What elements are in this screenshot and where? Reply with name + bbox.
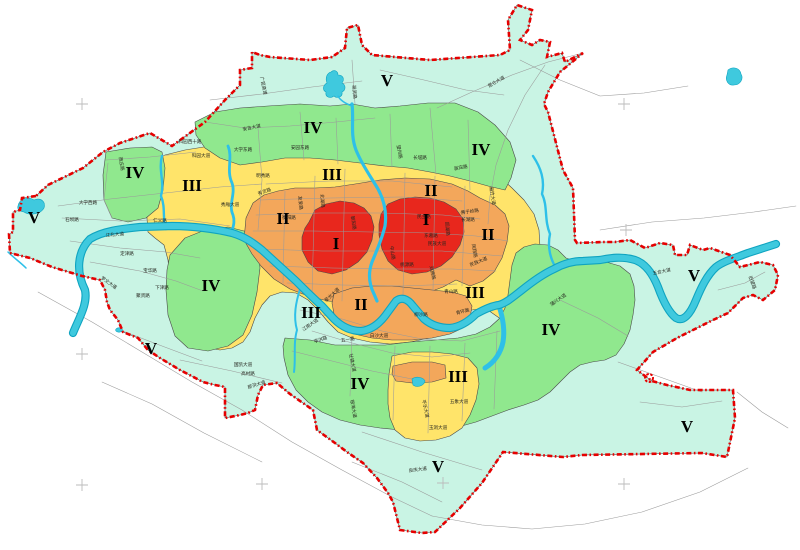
road-label: 白沙大道 <box>370 332 389 339</box>
grid-cross <box>618 478 630 490</box>
road-label: 柳沙路 <box>414 311 428 318</box>
road-label: 国凯大道 <box>234 361 253 368</box>
road-label: 大学东路 <box>234 146 253 153</box>
road-label: 科园西十路 <box>179 138 202 145</box>
zone-grade-label: II <box>354 295 368 314</box>
grid-cross <box>76 348 88 360</box>
grid-cross <box>76 479 88 491</box>
map-canvas: 大学西路石坝路仁义路江北大道定津路宝华路下津路聚贤路罗文大道西庄路科园大道科园西… <box>0 0 800 550</box>
road-label: 大学西路 <box>79 199 98 206</box>
road-label: 石坝路 <box>65 216 79 223</box>
grid-cross <box>256 478 268 490</box>
grid-cross <box>76 98 88 110</box>
grid-cross <box>620 224 632 236</box>
zone-grade-label: V <box>145 339 158 358</box>
road-label: 科园大道 <box>192 152 211 159</box>
road-label: 桃源路 <box>400 261 414 268</box>
road-label: 长湖路 <box>461 216 475 223</box>
road-label: 东葛路 <box>424 232 438 239</box>
zone-grade-label: IV <box>542 320 562 339</box>
zone-grade-label: V <box>28 208 41 227</box>
zone-grade-label: V <box>381 71 394 90</box>
zone-grade-label: II <box>481 225 495 244</box>
land-grade-map: 大学西路石坝路仁义路江北大道定津路宝华路下津路聚贤路罗文大道西庄路科园大道科园西… <box>0 0 800 550</box>
road-label: 五象大道 <box>450 398 469 405</box>
zone-grade-label: III <box>448 367 468 386</box>
road-label: 下津路 <box>155 284 169 291</box>
zone-grade-label: V <box>688 266 701 285</box>
road-label: 高村路 <box>241 370 255 377</box>
grid-cross <box>618 98 630 110</box>
zone-grade-label: IV <box>202 276 222 295</box>
road-line <box>600 206 796 230</box>
zone-grade-label: III <box>182 176 202 195</box>
zone-grade-label: III <box>322 165 342 184</box>
road-label: 宝华路 <box>143 267 157 274</box>
zone-grade-label: I <box>333 234 340 253</box>
road-label: 仁义路 <box>153 217 167 224</box>
zone-grade-label: III <box>301 303 321 322</box>
zone-grade-label: II <box>424 181 438 200</box>
road-label: 秀厢大道 <box>221 201 240 208</box>
road-label: 聚贤路 <box>136 292 150 299</box>
zone-grade-label: V <box>681 417 694 436</box>
road-line <box>737 392 788 428</box>
zone-grade-label: IV <box>351 374 371 393</box>
road-label: 玉洞大道 <box>429 424 448 431</box>
zone-grade-label: IV <box>472 140 492 159</box>
road-label: 定津路 <box>120 250 134 257</box>
road-label: 明秀路 <box>256 172 270 179</box>
zone-grade-label: IV <box>126 163 146 182</box>
road-label: 民族大道 <box>428 240 447 247</box>
zone-grade-label: V <box>432 457 445 476</box>
road-label: 长堽路 <box>413 154 427 161</box>
zone-grade-label: IV <box>304 118 324 137</box>
northeast-pond <box>726 68 742 85</box>
zone-grade-label: I <box>423 210 430 229</box>
road-label: 青山路 <box>444 288 458 295</box>
road-label: 安园东路 <box>291 144 310 151</box>
zone-grade-label: II <box>276 209 290 228</box>
zone-grade-label: III <box>465 283 485 302</box>
